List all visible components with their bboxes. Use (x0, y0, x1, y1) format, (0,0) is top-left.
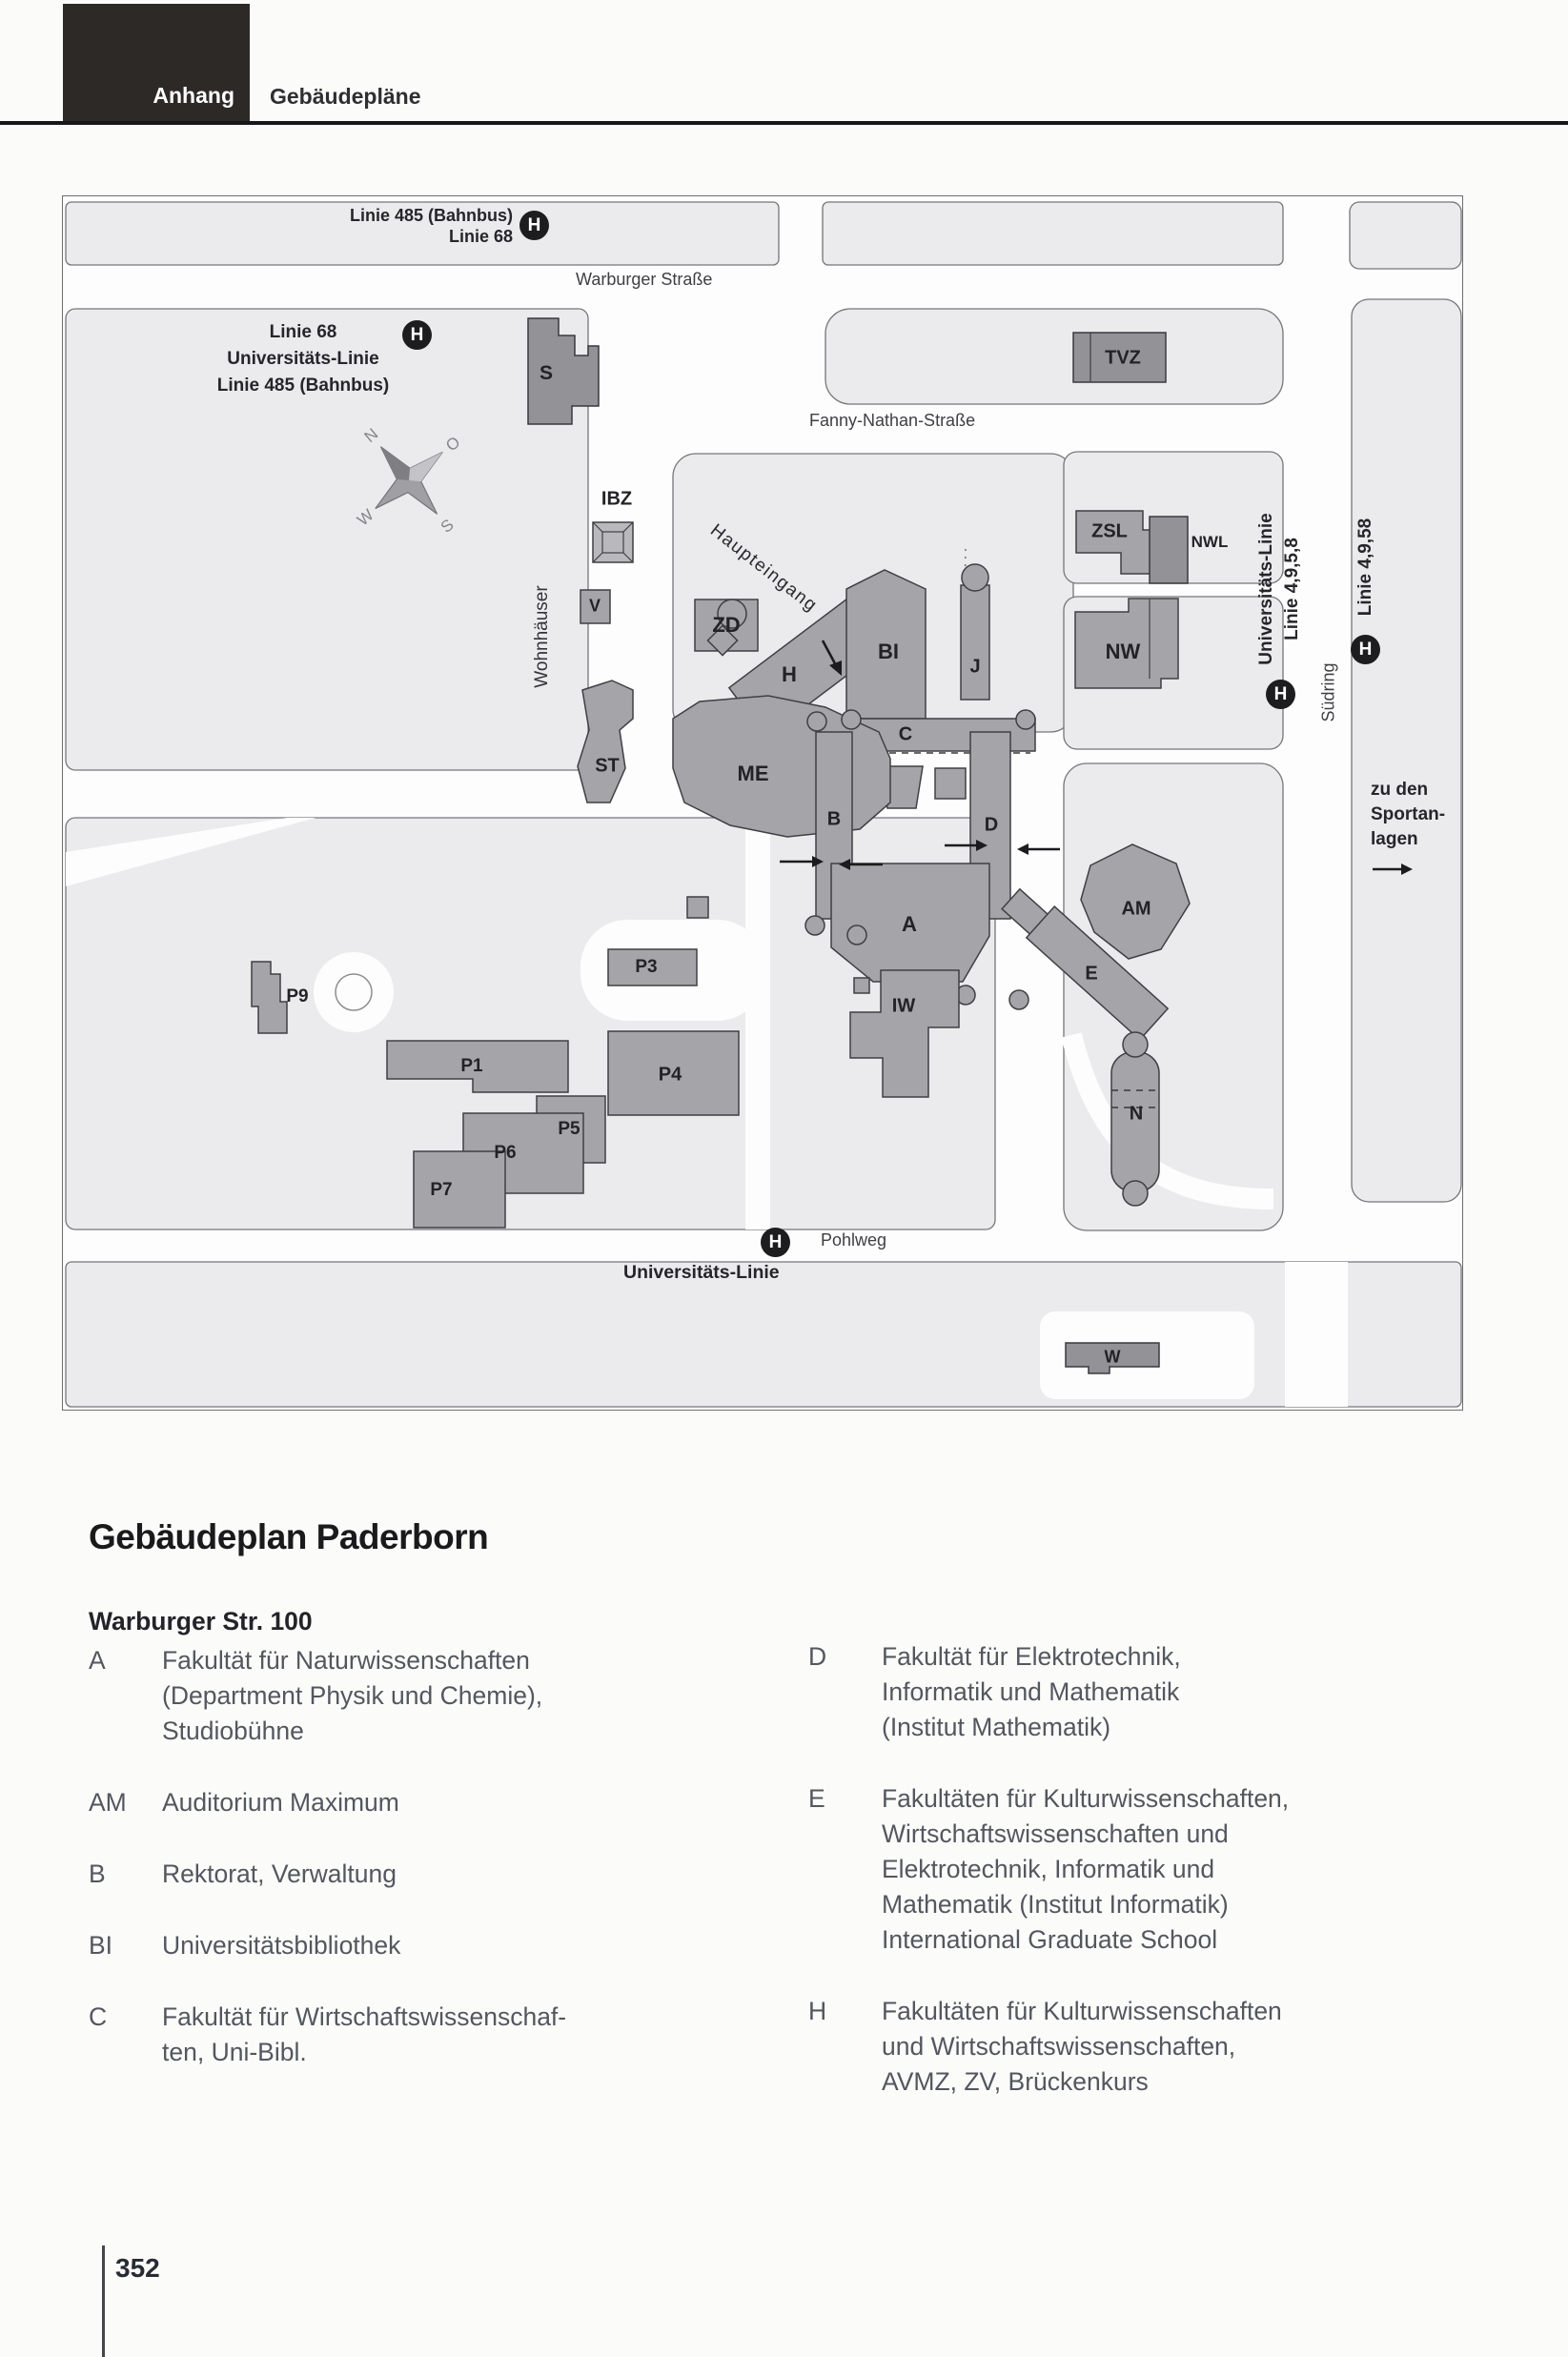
label-building-st: ST (595, 756, 620, 778)
label-building-e: E (1085, 964, 1097, 985)
transit-label-left: Linie 68 Universitäts-Linie Linie 485 (B… (208, 319, 398, 399)
legend-line: ten, Uni-Bibl. (162, 2035, 746, 2070)
label-building-bi: BI (878, 640, 899, 664)
legend-line: International Graduate School (882, 1922, 1466, 1958)
annotation-wohnhaeuser: Wohnhäuser (532, 560, 559, 713)
label-building-ibz: IBZ (601, 489, 632, 511)
street-pohlweg: Pohlweg (821, 1230, 886, 1250)
header-tab-label: Anhang (153, 83, 234, 109)
transit-label-right-univ: Universitäts-Linie Linie 4,9,5,8 (1253, 494, 1305, 684)
bus-stop-letter: H (528, 215, 541, 236)
legend-entry-a: A Fakultät für Naturwissenschaften (Depa… (89, 1643, 746, 1749)
building-tower-1 (807, 712, 826, 731)
block-east (1352, 299, 1461, 1202)
page-number: 352 (115, 2253, 160, 2284)
transit-label-top: Linie 485 (Bahnbus) Linie 68 (322, 205, 513, 247)
block-north-b (823, 202, 1283, 265)
label-building-c: C (899, 724, 912, 746)
label-building-p5: P5 (558, 1119, 580, 1140)
road-vertical-center (745, 818, 770, 1229)
bus-stop-icon-left: H (402, 320, 432, 350)
legend-entry-b: B Rektorat, Verwaltung (89, 1857, 746, 1892)
bus-stop-letter: H (1359, 640, 1373, 660)
legend-line: Elektrotechnik, Informatik und (882, 1852, 1466, 1887)
legend-entry-d: D Fakultät für Elektrotechnik, Informati… (808, 1639, 1466, 1745)
label-building-p4: P4 (659, 1065, 682, 1087)
legend-text: Fakultäten für Kulturwissenschaften und … (882, 1994, 1466, 2100)
transit-left-line2: Universitäts-Linie (208, 346, 398, 373)
transit-top-line2: Linie 68 (322, 226, 513, 247)
label-building-j: J (969, 657, 980, 679)
legend-code: B (89, 1857, 162, 1892)
header-rule (0, 121, 1568, 125)
annotation-sport-line2: Sportan- (1371, 803, 1471, 827)
label-building-w: W (1105, 1348, 1121, 1368)
label-building-h: H (782, 662, 797, 687)
annotation-sport: zu den Sportan- lagen (1371, 778, 1471, 852)
label-building-n: N (1130, 1104, 1143, 1126)
legend-text: Fakultät für Elektrotechnik, Informatik … (882, 1639, 1466, 1745)
header-section-label: Gebäudepläne (270, 84, 420, 110)
building-n-tower-bottom (1123, 1181, 1148, 1206)
building-tower-7 (1009, 990, 1028, 1009)
label-building-v: V (589, 597, 601, 617)
label-building-a: A (902, 912, 917, 937)
legend-line: Studiobühne (162, 1714, 746, 1749)
building-nwl (1150, 517, 1188, 583)
legend-line: Informatik und Mathematik (882, 1675, 1466, 1710)
legend-subtitle: Warburger Str. 100 (89, 1607, 313, 1636)
label-building-p7: P7 (430, 1180, 452, 1201)
transit-left-line3: Linie 485 (Bahnbus) (208, 373, 398, 399)
legend-line: Fakultät für Elektrotechnik, (882, 1639, 1466, 1675)
building-tower-4 (805, 916, 825, 935)
legend-line: (Department Physik und Chemie), (162, 1678, 746, 1714)
block-north-east (1350, 202, 1461, 269)
legend-line: Mathematik (Institut Informatik) (882, 1887, 1466, 1922)
legend-entry-e: E Fakultäten für Kulturwissenschaften, W… (808, 1781, 1466, 1958)
block-tvz (825, 309, 1283, 404)
campus-map: N O S W Warburger Straße Fanny-Nathan-St… (62, 195, 1463, 1411)
label-building-p6: P6 (494, 1143, 516, 1164)
legend-code: BI (89, 1928, 162, 1963)
legend-code: A (89, 1643, 162, 1749)
legend-code: C (89, 2000, 162, 2070)
street-warburger: Warburger Straße (576, 270, 712, 290)
label-building-me: ME (738, 762, 769, 786)
building-tower-5 (847, 925, 866, 945)
bus-stop-icon-pohlweg: H (761, 1228, 790, 1257)
building-j (961, 585, 989, 700)
legend-code: H (808, 1994, 882, 2100)
page-title: Gebäudeplan Paderborn (89, 1517, 488, 1557)
legend-column-right: D Fakultät für Elektrotechnik, Informati… (808, 1639, 1466, 2136)
bus-stop-icon-linie4958: H (1351, 635, 1380, 664)
annotation-sport-line3: lagen (1371, 827, 1471, 852)
street-fanny-nathan: Fanny-Nathan-Straße (809, 411, 975, 431)
label-building-p9: P9 (286, 986, 308, 1007)
legend-line: Rektorat, Verwaltung (162, 1857, 746, 1892)
legend-entry-h: H Fakultäten für Kulturwissenschaften un… (808, 1994, 1466, 2100)
label-building-zd: ZD (712, 613, 740, 638)
legend-line: Fakultät für Wirtschaftswissenschaf- (162, 2000, 746, 2035)
legend-line: Auditorium Maximum (162, 1785, 746, 1820)
label-building-nw: NW (1106, 640, 1141, 664)
transit-label-right-line: Linie 4,9,58 (1355, 505, 1376, 629)
bus-stop-letter: H (769, 1232, 783, 1253)
header-tab-box: Anhang (63, 4, 250, 121)
legend-code: E (808, 1781, 882, 1958)
transit-left-line1: Linie 68 (208, 319, 398, 346)
label-building-zsl: ZSL (1091, 521, 1128, 543)
building-j-tower (962, 564, 988, 591)
legend-text: Rektorat, Verwaltung (162, 1857, 746, 1892)
legend-line: Fakultäten für Kulturwissenschaften, (882, 1781, 1466, 1817)
legend-text: Fakultät für Naturwissenschaften (Depart… (162, 1643, 746, 1749)
label-building-b: B (827, 809, 841, 831)
legend-line: Fakultäten für Kulturwissenschaften (882, 1994, 1466, 2029)
label-building-am: AM (1121, 899, 1151, 921)
bus-stop-icon-univ-linie: H (1266, 680, 1295, 709)
label-building-p1: P1 (460, 1056, 482, 1077)
legend-line: Fakultät für Naturwissenschaften (162, 1643, 746, 1678)
legend-entry-bi: BI Universitätsbibliothek (89, 1928, 746, 1963)
legend-text: Auditorium Maximum (162, 1785, 746, 1820)
annotation-sport-line1: zu den (1371, 778, 1471, 803)
building-tower-3 (1016, 710, 1035, 729)
label-building-s: S (540, 362, 553, 385)
transit-label-bottom: Universitäts-Linie (623, 1262, 780, 1284)
label-building-iw: IW (892, 996, 915, 1018)
legend-text: Fakultäten für Kulturwissenschaften, Wir… (882, 1781, 1466, 1958)
legend-entry-c: C Fakultät für Wirtschaftswissenschaf- t… (89, 2000, 746, 2070)
legend-column-left: A Fakultät für Naturwissenschaften (Depa… (89, 1643, 746, 2106)
street-suedring: Südring (1319, 645, 1339, 741)
legend-line: (Institut Mathematik) (882, 1710, 1466, 1745)
legend-line: und Wirtschaftswissenschaften, (882, 2029, 1466, 2064)
label-building-nwl: NWL (1191, 533, 1229, 552)
legend-line: Universitätsbibliothek (162, 1928, 746, 1963)
building-n-tower-top (1123, 1032, 1148, 1057)
label-building-d: D (985, 815, 998, 837)
legend-code: AM (89, 1785, 162, 1820)
legend-entry-am: AM Auditorium Maximum (89, 1785, 746, 1820)
footer-rule (102, 2245, 105, 2357)
transit-right-univ-line1: Universitäts-Linie (1253, 494, 1279, 684)
road-suedring-south (1285, 1262, 1348, 1407)
building-ibz (593, 522, 633, 562)
legend-code: D (808, 1639, 882, 1745)
building-court-b (935, 768, 966, 799)
transit-top-line1: Linie 485 (Bahnbus) (322, 205, 513, 226)
legend-text: Universitätsbibliothek (162, 1928, 746, 1963)
building-tower-2 (842, 710, 861, 729)
roundabout-center (336, 974, 372, 1010)
building-iw-annex (854, 978, 869, 993)
legend-line: AVMZ, ZV, Brückenkurs (882, 2064, 1466, 2100)
building-small-kiosk (687, 897, 708, 918)
bus-stop-letter: H (1274, 684, 1288, 705)
label-building-tvz: TVZ (1105, 348, 1141, 370)
bus-stop-icon-top: H (519, 211, 549, 240)
document-page: Anhang Gebäudepläne (0, 0, 1568, 2357)
legend-text: Fakultät für Wirtschaftswissenschaf- ten… (162, 2000, 746, 2070)
label-building-p3: P3 (635, 957, 657, 978)
building-p7 (414, 1151, 505, 1228)
bus-stop-letter: H (411, 325, 424, 346)
transit-right-univ-line2: Linie 4,9,5,8 (1279, 494, 1305, 684)
legend-line: Wirtschaftswissenschaften und (882, 1817, 1466, 1852)
building-st (578, 681, 633, 803)
